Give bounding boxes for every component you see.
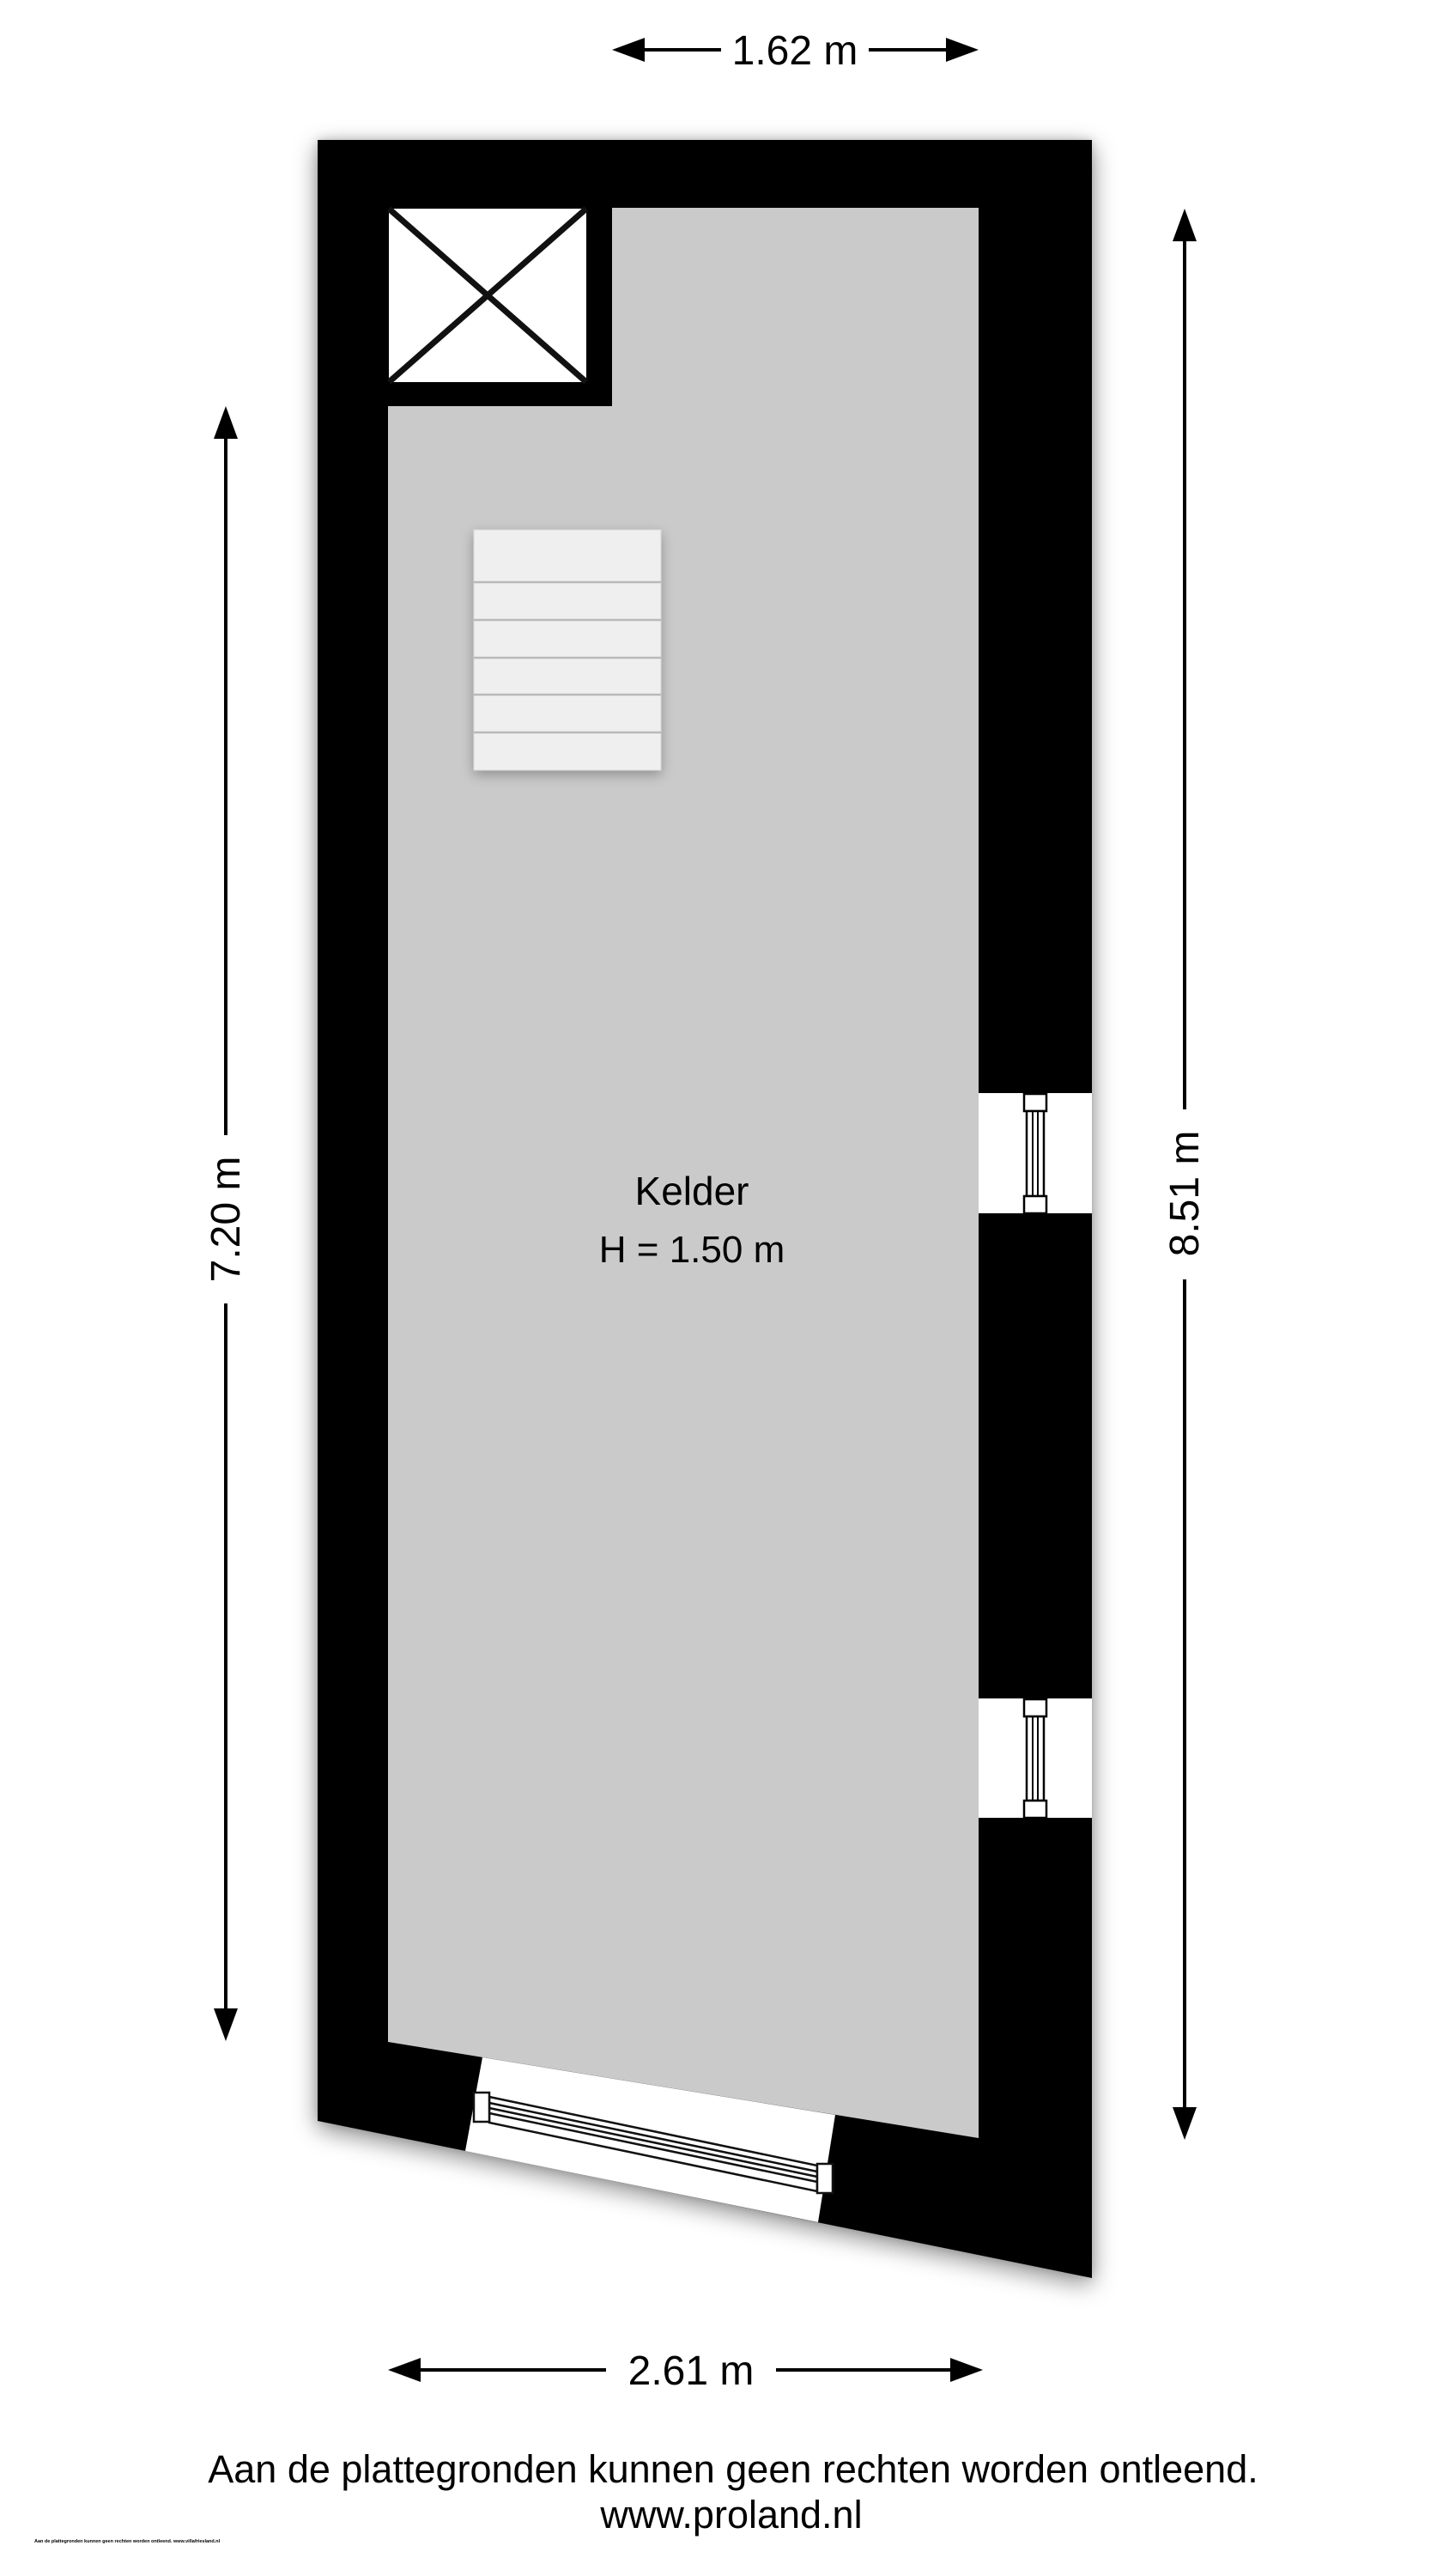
window-opening-1 (979, 1093, 1092, 1213)
dimension-right-label: 8.51 m (1162, 1131, 1208, 1257)
hatch-cap-right (817, 2164, 833, 2193)
window-opening-2 (979, 1698, 1092, 1818)
hatch-cap-left (474, 2093, 489, 2122)
window-2-cap-bottom (1024, 1801, 1046, 1818)
floor-plan-page: Kelder H = 1.50 m 1.62 m 2.61 m 7.20 m (0, 0, 1449, 2576)
floor-plan-canvas: Kelder H = 1.50 m 1.62 m 2.61 m 7.20 m (0, 0, 1449, 2576)
window-1-cap-bottom (1024, 1196, 1046, 1213)
arrowhead-left-icon (388, 2358, 421, 2382)
footer-fine-print: Aan de plattegronden kunnen geen rechten… (34, 2539, 221, 2544)
arrowhead-up-icon (214, 406, 238, 439)
window-2-frame (1027, 1716, 1044, 1801)
footer-website: www.proland.nl (599, 2493, 862, 2537)
shaft-void (389, 209, 586, 382)
dimension-top-label: 1.62 m (732, 28, 858, 74)
arrowhead-up-icon (1173, 209, 1197, 241)
arrowhead-right-icon (950, 2358, 983, 2382)
arrowhead-right-icon (946, 38, 979, 62)
arrowhead-down-icon (1173, 2107, 1197, 2140)
room-name-label: Kelder (635, 1169, 749, 1213)
dimension-bottom-label: 2.61 m (628, 2348, 755, 2394)
window-2-cap-top (1024, 1699, 1046, 1716)
stairs-body (474, 530, 661, 770)
dimension-left-label: 7.20 m (203, 1157, 249, 1283)
window-1-cap-top (1024, 1094, 1046, 1111)
arrowhead-left-icon (612, 38, 645, 62)
arrowhead-down-icon (214, 2008, 238, 2041)
window-1-frame (1027, 1111, 1044, 1196)
room-height-label: H = 1.50 m (599, 1229, 785, 1271)
stairs (474, 530, 661, 770)
footer-disclaimer: Aan de plattegronden kunnen geen rechten… (208, 2447, 1258, 2491)
